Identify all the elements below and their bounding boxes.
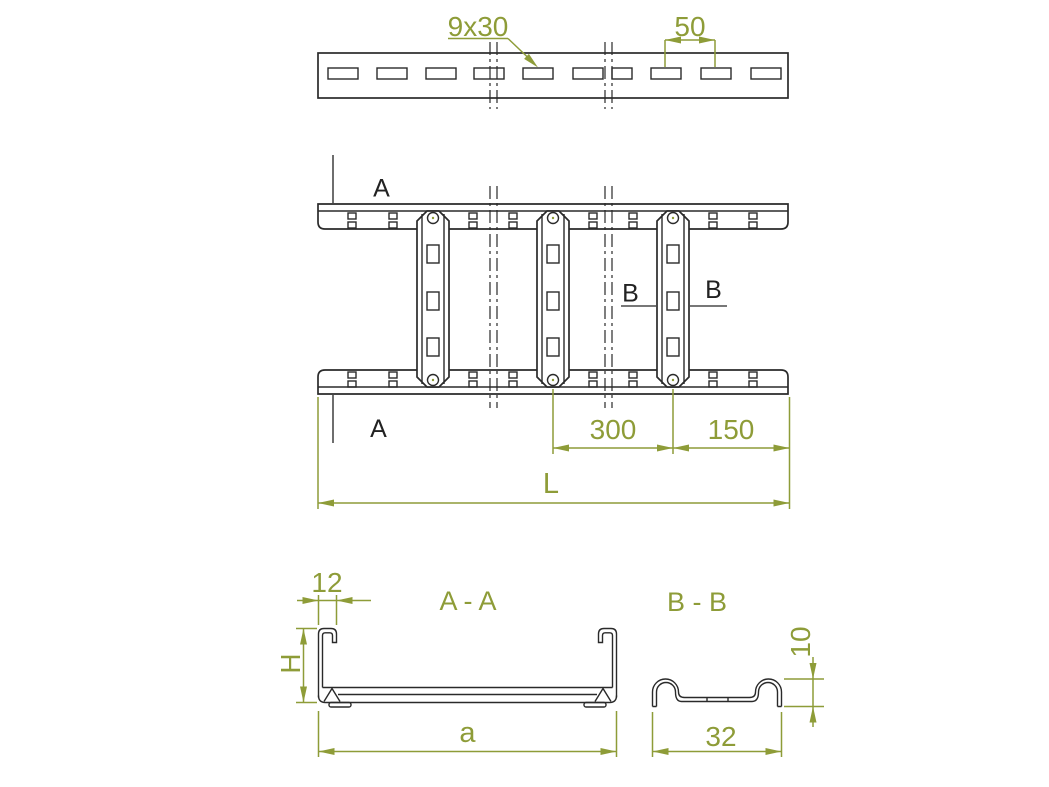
rivet-center <box>552 217 554 219</box>
channel-floor <box>319 696 617 703</box>
section-bb-view: B - B 10 32 <box>653 587 825 757</box>
dim-arrowhead <box>553 445 569 452</box>
rivet-center <box>432 379 434 381</box>
plan-dimensions: 300 150 L <box>318 389 790 509</box>
rivet-center <box>552 379 554 381</box>
dim-rung-width-label: 32 <box>705 721 736 752</box>
dim-height: H <box>275 629 317 703</box>
rivet-center <box>672 379 674 381</box>
dim-inner-width: a <box>319 711 617 757</box>
section-marker-a: A A <box>333 155 390 443</box>
slot-size-label: 9x30 <box>448 11 509 42</box>
rung-end-gusset-left <box>324 689 340 702</box>
dim-arrowhead <box>300 687 307 703</box>
dim-arrowhead <box>673 445 689 452</box>
dim-arrowhead <box>653 748 669 755</box>
rung-profile-inner <box>657 683 778 707</box>
plan-view-ladder: A A B B 300 150 L <box>318 155 790 509</box>
rung-3 <box>657 211 689 387</box>
dim-flange-width: 12 <box>297 567 371 625</box>
rivet-center <box>672 217 674 219</box>
dim-arrowhead <box>319 748 335 755</box>
extension-lines <box>784 679 824 707</box>
dim-end-offset: 150 <box>708 414 755 445</box>
rung-2 <box>537 211 569 387</box>
extension-lines <box>319 595 337 625</box>
cable-ladder-drawing: 9x30 50 <box>0 0 1049 787</box>
top-view-rail-elevation: 9x30 50 <box>318 11 788 109</box>
dim-arrowhead <box>318 500 334 507</box>
foot-pad-right <box>584 703 606 708</box>
section-label-b-right: B <box>705 276 722 304</box>
dim-height-label: H <box>275 653 306 673</box>
dim-arrowhead <box>601 748 617 755</box>
dim-arrowhead <box>766 748 782 755</box>
section-aa-view: A - A 12 H <box>275 567 617 757</box>
section-aa-title: A - A <box>439 586 496 616</box>
dim-arrowhead <box>810 707 817 723</box>
section-label-b-left: B <box>622 280 639 308</box>
dim-arrowhead <box>699 37 715 44</box>
section-label-a-top: A <box>373 175 390 203</box>
dim-arrowhead <box>665 37 681 44</box>
dim-arrowhead <box>810 663 817 679</box>
rung-end-gusset-right <box>595 689 611 702</box>
drawing-canvas: 9x30 50 <box>0 0 1049 787</box>
section-bb-title: B - B <box>667 587 727 617</box>
dim-inner-width-label: a <box>459 717 476 749</box>
dim-arrowhead <box>657 445 673 452</box>
dim-rung-spacing: 300 <box>590 414 637 445</box>
dim-arrowhead <box>303 597 319 604</box>
section-label-a-bottom: A <box>370 415 387 443</box>
dim-arrowhead <box>300 629 307 645</box>
dim-total-length: L <box>543 468 559 500</box>
dim-hump-height: 10 <box>784 626 824 727</box>
rung-1 <box>417 211 449 387</box>
dim-arrowhead <box>774 500 790 507</box>
dim-arrowhead <box>337 597 353 604</box>
foot-pad-left <box>329 703 351 708</box>
dim-flange-width-label: 12 <box>311 567 342 598</box>
dim-hump-height-label: 10 <box>785 626 816 657</box>
dim-rung-width: 32 <box>653 712 782 757</box>
rivet-center <box>432 217 434 219</box>
dim-arrowhead <box>774 445 790 452</box>
rung-profile-outer <box>653 679 782 707</box>
